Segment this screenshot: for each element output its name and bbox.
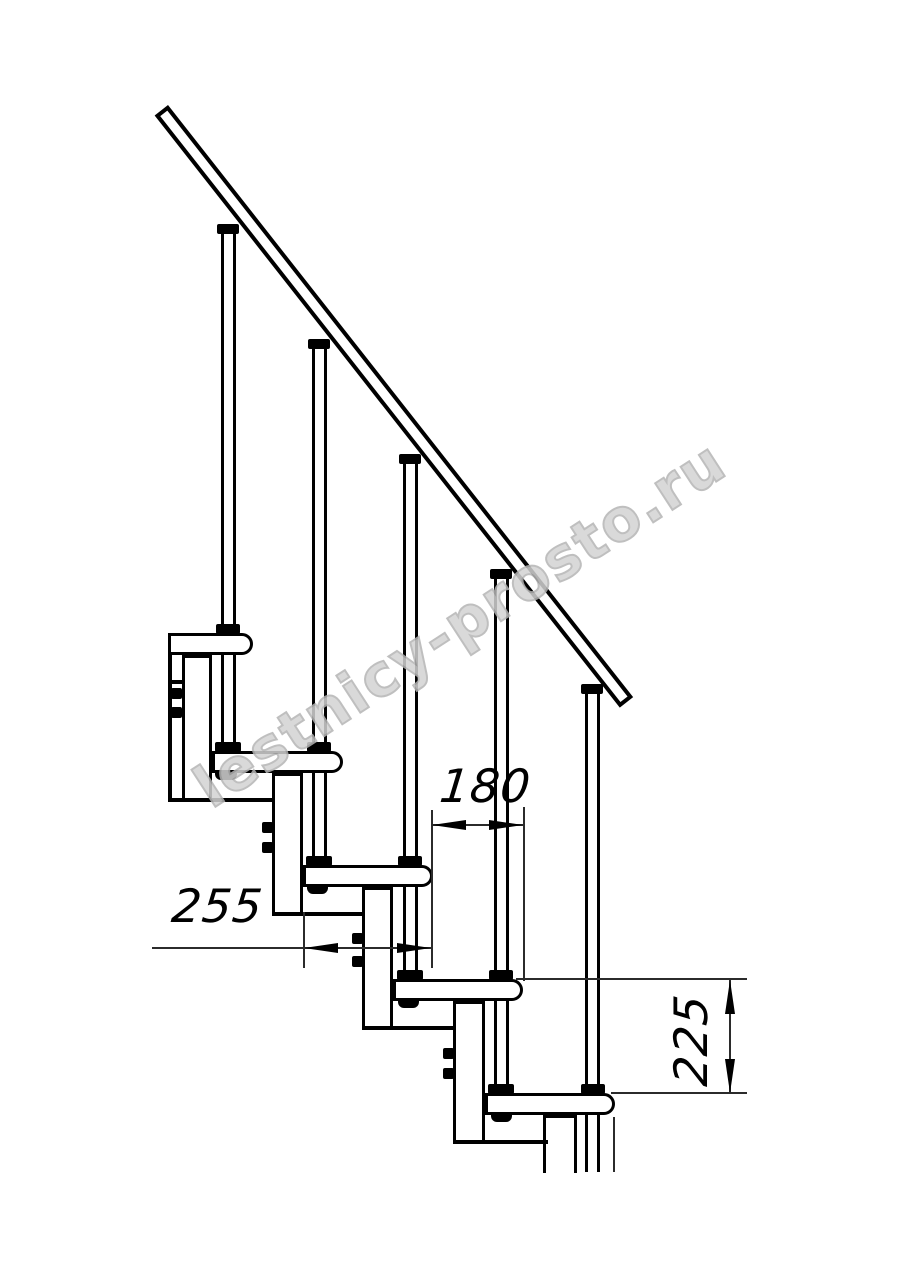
baluster-foot [488,1084,514,1094]
tread-mount-nub [398,1000,419,1008]
baluster-foot [397,970,423,980]
dim-arrow-icon [725,1059,735,1093]
baluster-collar [398,856,422,866]
tread [303,865,433,887]
baluster-collar [581,1084,605,1094]
baluster-foot [306,856,332,866]
module-plate [453,1140,548,1144]
extension-line [303,912,305,968]
dimension-label-255: 255 [169,879,265,933]
bolt [352,956,363,967]
bolt [443,1048,454,1059]
support-column [272,773,303,916]
drawing-canvas: 255 180 225 lestnicy-prosto.ru [0,0,914,1280]
bolt [262,842,273,853]
dimension-label-225: 225 [665,967,717,1112]
extension-line [431,810,433,968]
tread-mount-nub [307,886,328,894]
baluster [403,461,418,972]
baluster-top-cap [581,684,603,694]
bolt [262,822,273,833]
support-column [453,1001,485,1144]
dim-arrow-icon [432,820,466,830]
bolt [171,688,182,699]
extension-line [523,807,525,981]
dim-arrow-icon [397,943,431,953]
baluster-collar [216,624,240,634]
baluster [312,346,327,858]
dim-arrow-icon [725,980,735,1014]
drawing-cut-edge [168,655,172,802]
dimension-label-180: 180 [437,759,533,813]
bolt [443,1068,454,1079]
tread [393,979,523,1001]
tread-mount-nub [491,1114,512,1122]
bolt [171,707,182,718]
dim-arrow-icon [304,943,338,953]
baluster-top-cap [217,224,239,234]
baluster-collar [489,970,513,980]
baluster [494,576,509,1086]
tread [168,633,253,655]
support-column [543,1115,577,1173]
support-column [362,887,393,1030]
module-plate [362,1026,455,1030]
baluster-top-cap [399,454,421,464]
module-plate [272,912,363,916]
tread [485,1093,615,1115]
extension-line [613,1117,615,1172]
bolt [352,933,363,944]
baluster [221,231,236,744]
dim-arrow-icon [489,820,523,830]
baluster-top-cap [308,339,330,349]
dimension-line-255 [152,947,432,949]
